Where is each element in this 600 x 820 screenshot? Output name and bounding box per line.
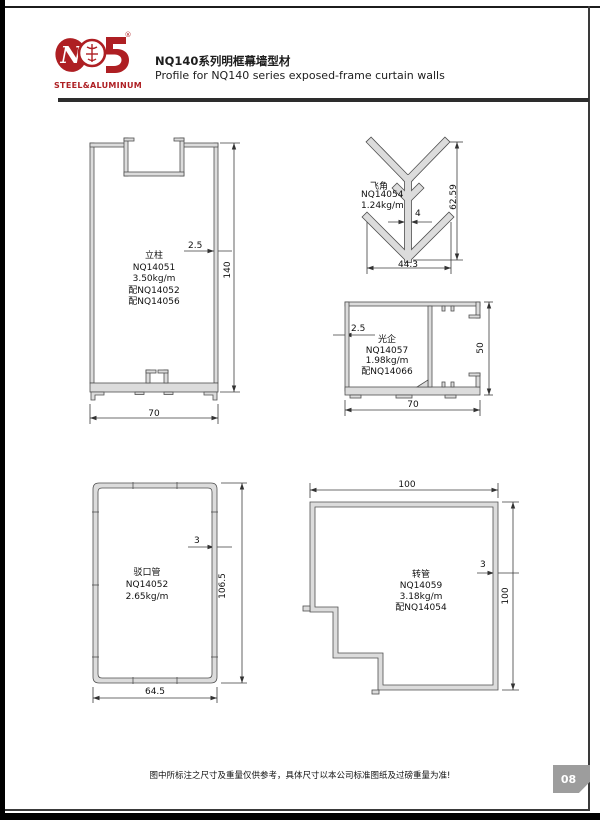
dim-height: 100 — [501, 581, 511, 611]
dim-height: 140 — [223, 255, 233, 285]
catalog-page: N ® STEEL&ALUMINUM NQ140系列明框幕墙型材 Profile… — [0, 0, 600, 820]
drawing-splice-tube: 驳口管 NQ14052 2.65kg/m 3 106.5 64.5 — [85, 475, 260, 710]
dim-height: 50 — [476, 333, 486, 363]
profile-pair: 配NQ14052 — [128, 286, 179, 298]
page-edge-bottom — [0, 813, 600, 820]
dim-width: 64.5 — [140, 687, 170, 697]
mullion-label-block: 立柱 NQ14051 3.50kg/m 配NQ14052 配NQ14056 — [109, 251, 199, 309]
svg-text:®: ® — [125, 31, 132, 39]
profile-pair: 配NQ14054 — [395, 603, 446, 614]
dim-thickness: 2.5 — [188, 241, 202, 251]
page-edge-left — [0, 0, 5, 820]
profile-pair: 配NQ14066 — [361, 367, 412, 378]
profile-code: NQ14059 — [400, 581, 442, 592]
profile-name: 立柱 — [145, 251, 163, 263]
brand-logo: N ® — [54, 27, 136, 81]
dim-width: 44.3 — [393, 260, 423, 270]
dim-height: 62.59 — [449, 180, 459, 214]
profile-code: NQ14054 — [361, 190, 403, 200]
dim-height: 106.5 — [218, 569, 228, 603]
profile-name: 转管 — [412, 570, 430, 581]
corner-tube-label-block: 转管 NQ14059 3.18kg/m 配NQ14054 — [376, 570, 466, 614]
profile-name: 光企 — [378, 335, 396, 346]
drawing-corner-tube: 转管 NQ14059 3.18kg/m 配NQ14054 100 100 3 — [295, 478, 530, 710]
profile-weight: 3.18kg/m — [400, 592, 443, 603]
page-border-top — [5, 6, 600, 8]
page-border-right — [588, 6, 590, 810]
dim-width: 70 — [139, 409, 169, 419]
dim-thickness: 2.5 — [351, 324, 365, 334]
dim-width: 100 — [392, 480, 422, 490]
profile-name: 驳口管 — [133, 567, 160, 579]
drawing-stile: 2.5 光企 NQ14057 1.98kg/m 配NQ14066 50 70 — [325, 295, 505, 420]
profile-weight: 1.98kg/m — [366, 356, 409, 367]
brand-name: STEEL&ALUMINUM — [54, 81, 136, 90]
footer-disclaimer: 图中所标注之尺寸及重量仅供参考，具体尺寸以本公司标准图纸及过磅重量为准! — [0, 769, 600, 781]
profile-pair: 配NQ14056 — [128, 297, 179, 309]
header-divider — [58, 98, 589, 102]
dim-thickness: 3 — [194, 536, 200, 546]
drawing-mullion: 立柱 NQ14051 3.50kg/m 配NQ14052 配NQ14056 2.… — [80, 125, 255, 435]
dim-width: 70 — [398, 400, 428, 410]
stile-label-block: 光企 NQ14057 1.98kg/m 配NQ14066 — [342, 335, 432, 377]
page-number: 08 — [561, 773, 576, 786]
profile-code: NQ14052 — [126, 579, 168, 591]
dim-thickness: 4 — [415, 209, 421, 219]
profile-weight: 1.24kg/m — [361, 201, 404, 211]
profile-weight: 3.50kg/m — [133, 274, 176, 286]
profile-weight: 2.65kg/m — [126, 591, 169, 603]
page-number-tab: 08 — [553, 765, 590, 793]
page-title-zh: NQ140系列明框幕墙型材 — [155, 53, 290, 69]
page-title-en: Profile for NQ140 series exposed-frame c… — [155, 69, 445, 82]
page-border-bottom — [5, 809, 590, 811]
splice-tube-label-block: 驳口管 NQ14052 2.65kg/m — [102, 567, 192, 603]
dim-thickness: 3 — [480, 560, 486, 570]
profile-code: NQ14051 — [133, 263, 175, 275]
profile-code: NQ14057 — [366, 346, 408, 357]
drawing-fin: 飞角 NQ14054 1.24kg/m 4 62.59 44.3 — [340, 125, 490, 285]
